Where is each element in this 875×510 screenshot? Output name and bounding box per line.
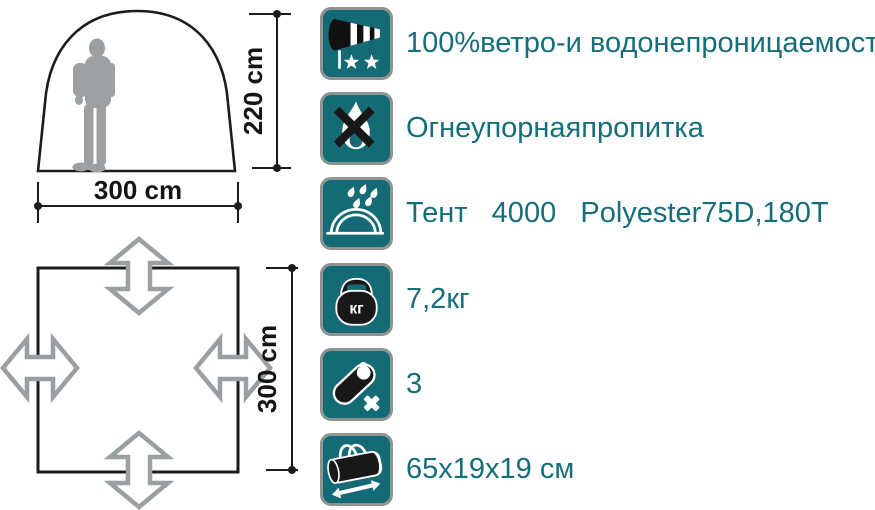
tent-outline xyxy=(38,11,235,171)
tent-spec-sheet: 220 cm 300 cm 300 cm xyxy=(0,0,875,510)
tent-dome xyxy=(328,209,383,233)
feature-label: 65x19x19 см xyxy=(406,453,574,486)
feature-label: 7,2кг xyxy=(406,283,470,316)
dimension-dot xyxy=(34,202,42,210)
dimension-dot xyxy=(273,10,281,18)
star-icon xyxy=(344,54,359,69)
feature-row-packed-size: 65x19x19 см xyxy=(320,432,574,506)
feature-label: 100%ветро-и водонепроницаемость xyxy=(406,27,875,60)
expand-arrow-left xyxy=(3,339,77,397)
feature-row-capacity: 3 xyxy=(320,347,422,421)
feature-row-tent-waterproof: Тент 4000 Polyester75D,180T xyxy=(320,176,829,250)
rain-drops xyxy=(347,182,380,208)
feature-row-fire-retardant: Огнеупорнаяпропитка xyxy=(320,91,704,165)
dimension-dot xyxy=(273,164,281,172)
expand-arrow-top xyxy=(110,239,168,313)
tent-waterproof-icon xyxy=(320,177,393,250)
feature-label: Огнеупорнаяпропитка xyxy=(406,112,704,145)
floor-size-label: 300 cm xyxy=(252,325,282,413)
x-mark xyxy=(363,395,379,411)
packed-bag-icon xyxy=(320,433,393,506)
feature-label: Тент 4000 Polyester75D,180T xyxy=(406,197,829,230)
dimension-dot xyxy=(288,264,296,272)
star-icon xyxy=(364,54,379,69)
dimension-dot xyxy=(234,202,242,210)
weight-icon: кг xyxy=(320,263,393,336)
feature-row-windproof: 100%ветро-и водонепроницаемость xyxy=(320,6,875,80)
windsock-rating-icon xyxy=(320,7,393,80)
tent-width-label: 300 cm xyxy=(94,175,182,205)
tent-height-label: 220 cm xyxy=(238,47,268,135)
floor-plan-diagram: 300 cm xyxy=(0,230,320,510)
feature-label: 3 xyxy=(406,368,422,401)
expand-arrow-bottom xyxy=(110,433,168,507)
kg-icon-text: кг xyxy=(349,300,364,317)
no-fire-icon xyxy=(320,92,393,165)
feature-row-weight: кг 7,2кг xyxy=(320,262,470,336)
tent-front-diagram: 220 cm 300 cm xyxy=(0,0,320,230)
dimension-dot xyxy=(288,466,296,474)
sleeping-bag-icon xyxy=(320,348,393,421)
